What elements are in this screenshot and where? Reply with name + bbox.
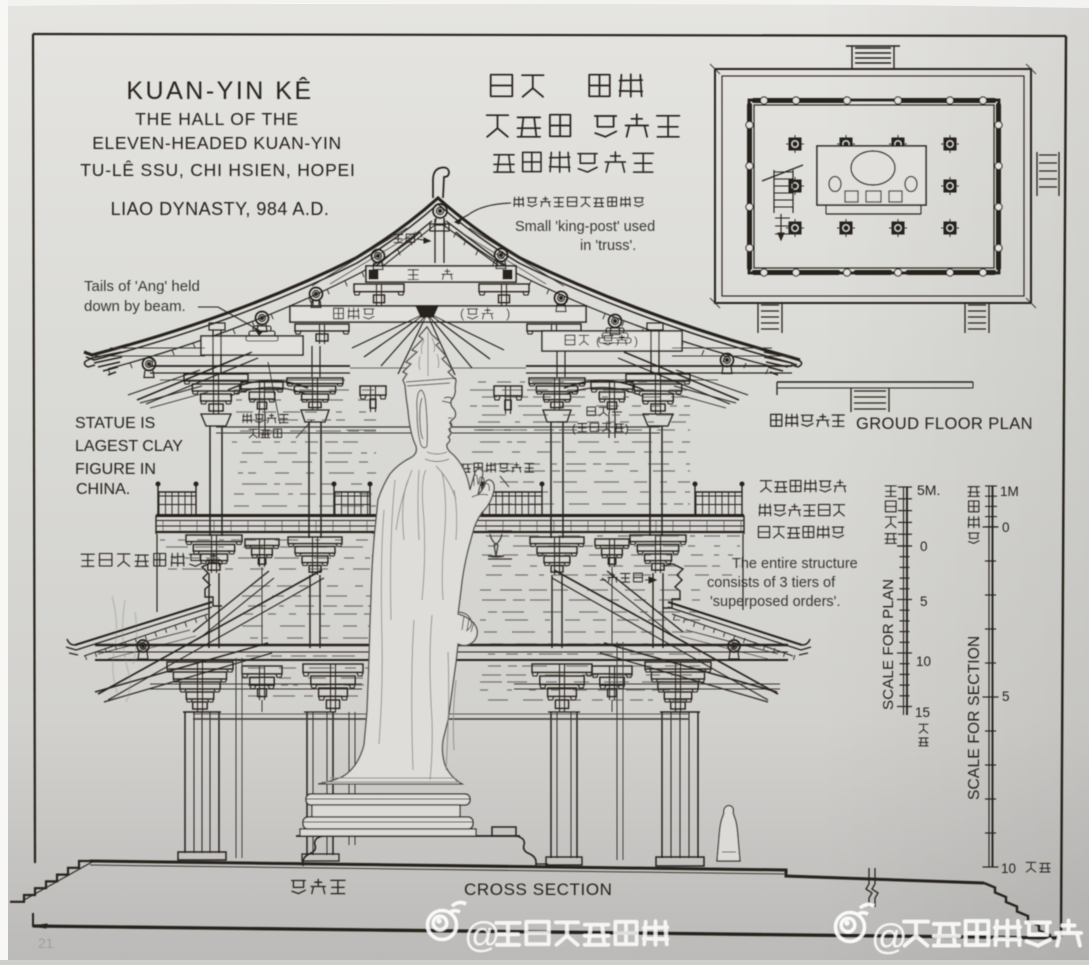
svg-text:5: 5 (920, 594, 928, 609)
svg-text:Tails of 'Ang' held: Tails of 'Ang' held (84, 278, 200, 295)
svg-text:CHINA.: CHINA. (76, 481, 130, 498)
svg-text:15: 15 (915, 705, 930, 720)
svg-text:down by beam.: down by beam. (84, 298, 186, 315)
svg-text:KUAN-YIN KÊ: KUAN-YIN KÊ (126, 76, 313, 105)
svg-text:GROUD FLOOR PLAN: GROUD FLOOR PLAN (856, 415, 1033, 433)
svg-text:FIGURE IN: FIGURE IN (75, 461, 156, 478)
svg-text:SCALE FOR PLAN: SCALE FOR PLAN (880, 579, 897, 710)
svg-text:(: ( (572, 423, 576, 435)
svg-text:): ) (634, 334, 638, 348)
svg-text:ELEVEN-HEADED KUAN-YIN: ELEVEN-HEADED KUAN-YIN (92, 133, 342, 153)
svg-text:): ) (506, 306, 510, 321)
svg-text:1M: 1M (1000, 484, 1019, 499)
svg-text:STATUE IS: STATUE IS (75, 415, 155, 432)
svg-text:Small 'king-post' used: Small 'king-post' used (515, 219, 655, 235)
svg-text:TU-LÊ SSU, CHI HSIEN, HOPEI: TU-LÊ SSU, CHI HSIEN, HOPEI (80, 160, 355, 180)
svg-text:): ) (625, 423, 629, 435)
svg-text:@: @ (871, 916, 908, 957)
svg-text:The entire structure: The entire structure (732, 556, 858, 572)
svg-text:consists of 3 tiers of: consists of 3 tiers of (707, 575, 836, 591)
svg-text:5: 5 (1002, 689, 1010, 704)
svg-text:10: 10 (916, 654, 931, 669)
svg-text:0: 0 (1002, 520, 1010, 535)
svg-text:0: 0 (920, 539, 928, 554)
svg-text:CROSS SECTION: CROSS SECTION (464, 880, 613, 899)
svg-text:'superposed orders'.: 'superposed orders'. (710, 594, 840, 610)
svg-text:LIAO DYNASTY, 984 A.D.: LIAO DYNASTY, 984 A.D. (111, 199, 330, 219)
svg-text:SCALE FOR SECTION: SCALE FOR SECTION (966, 636, 983, 800)
svg-text:@: @ (464, 914, 501, 955)
svg-text:10: 10 (1001, 861, 1016, 876)
svg-text:(: ( (460, 306, 465, 321)
svg-text:LAGEST CLAY: LAGEST CLAY (75, 438, 183, 455)
svg-text:in 'truss'.: in 'truss'. (580, 238, 636, 254)
svg-text:21: 21 (38, 935, 54, 951)
svg-text:THE HALL OF THE: THE HALL OF THE (135, 109, 299, 129)
svg-text:5M.: 5M. (917, 482, 940, 498)
